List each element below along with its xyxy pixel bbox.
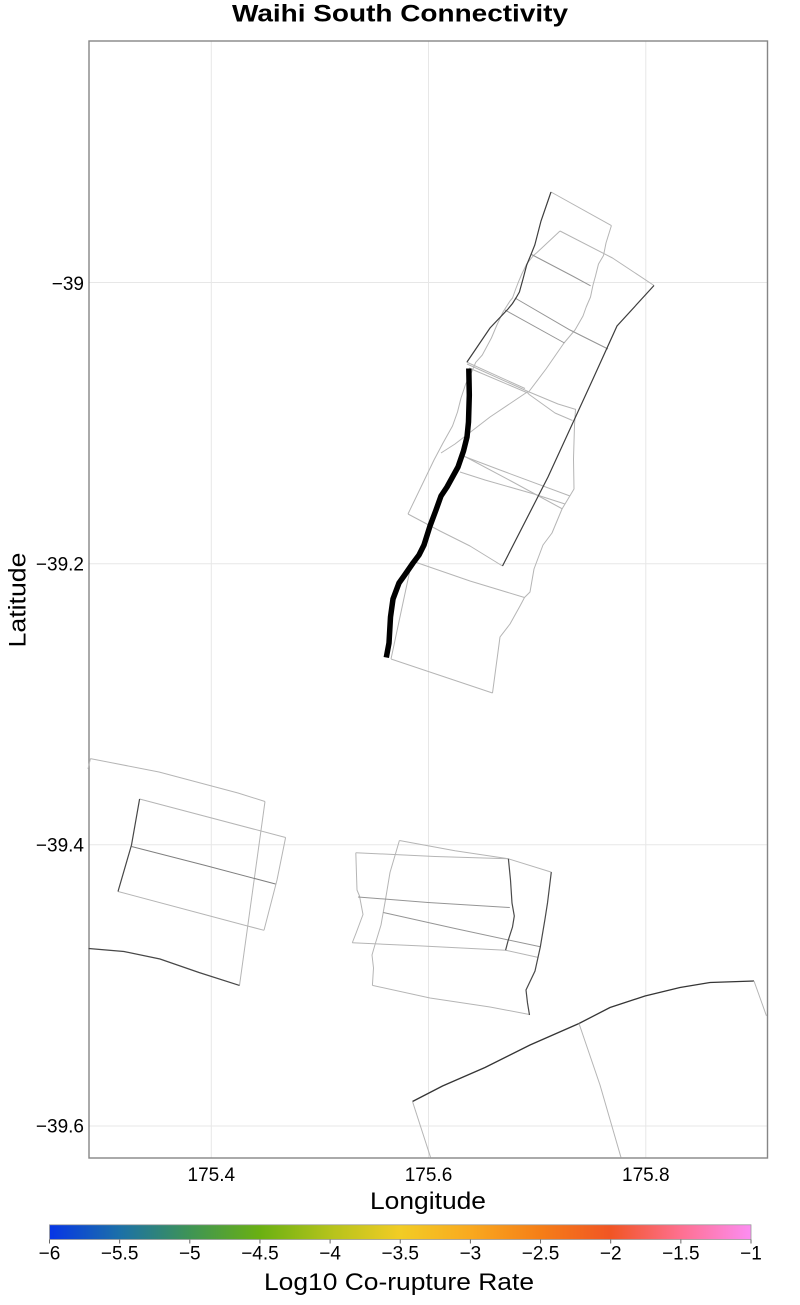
svg-text:Log10 Co-rupture Rate: Log10 Co-rupture Rate bbox=[264, 1269, 534, 1296]
svg-text:−4: −4 bbox=[319, 1244, 341, 1265]
svg-text:−1: −1 bbox=[740, 1244, 762, 1265]
svg-text:175.4: 175.4 bbox=[188, 1165, 236, 1186]
svg-text:−39.2: −39.2 bbox=[36, 555, 84, 576]
svg-text:−2: −2 bbox=[600, 1244, 622, 1265]
svg-text:−3.5: −3.5 bbox=[381, 1244, 419, 1265]
svg-text:Latitude: Latitude bbox=[5, 553, 32, 648]
svg-text:−39.4: −39.4 bbox=[36, 836, 85, 857]
svg-text:175.8: 175.8 bbox=[622, 1165, 670, 1186]
svg-text:−5.5: −5.5 bbox=[101, 1244, 139, 1265]
svg-text:−3: −3 bbox=[460, 1244, 482, 1265]
svg-text:−39.6: −39.6 bbox=[36, 1117, 84, 1138]
svg-text:Waihi South Connectivity: Waihi South Connectivity bbox=[232, 1, 569, 28]
svg-text:Longitude: Longitude bbox=[370, 1188, 486, 1215]
svg-text:−1.5: −1.5 bbox=[662, 1244, 700, 1265]
svg-text:−4.5: −4.5 bbox=[241, 1244, 279, 1265]
svg-text:−39: −39 bbox=[52, 274, 84, 295]
svg-text:−6: −6 bbox=[39, 1244, 61, 1265]
svg-text:−5: −5 bbox=[179, 1244, 201, 1265]
svg-text:−2.5: −2.5 bbox=[522, 1244, 560, 1265]
svg-text:175.6: 175.6 bbox=[405, 1165, 453, 1186]
